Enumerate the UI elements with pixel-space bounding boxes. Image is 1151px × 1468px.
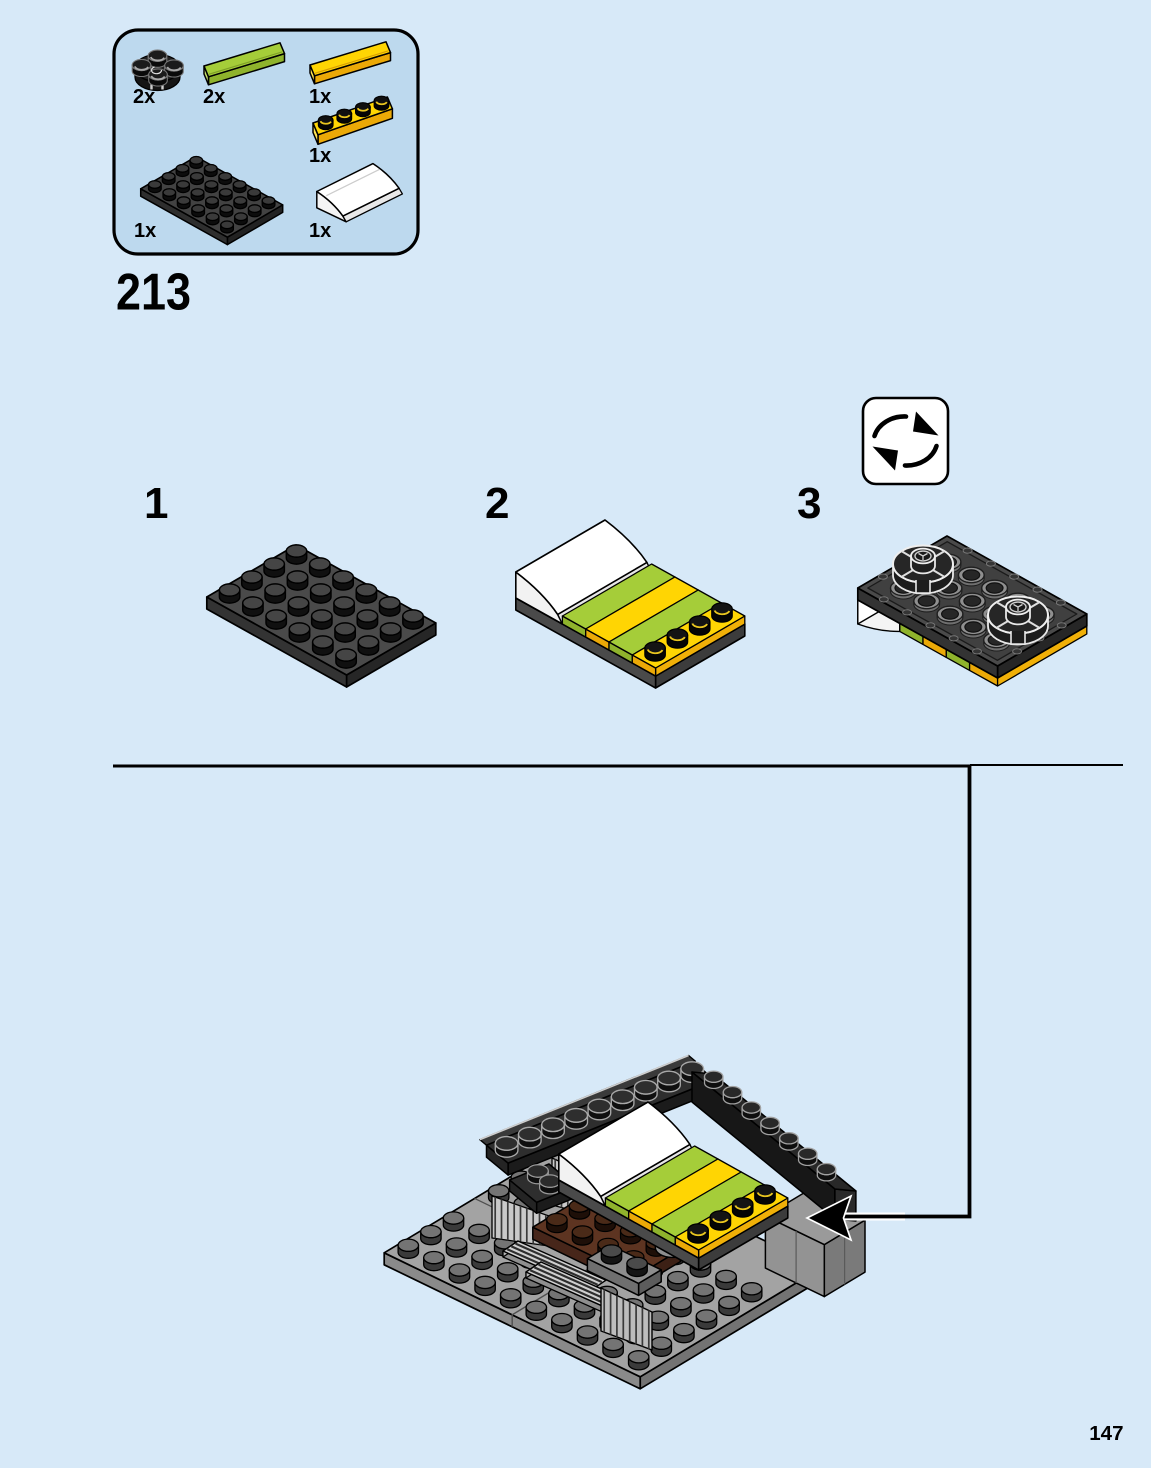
svg-text:213: 213: [116, 264, 191, 322]
svg-text:2x: 2x: [203, 86, 225, 108]
svg-text:3: 3: [797, 479, 821, 528]
svg-text:1x: 1x: [309, 220, 331, 242]
svg-text:1: 1: [144, 479, 168, 528]
svg-text:2x: 2x: [133, 86, 155, 108]
svg-text:2: 2: [485, 479, 509, 528]
svg-text:1x: 1x: [309, 145, 331, 167]
svg-text:1x: 1x: [309, 86, 331, 108]
svg-text:1x: 1x: [134, 220, 156, 242]
svg-text:147: 147: [1089, 1422, 1123, 1445]
